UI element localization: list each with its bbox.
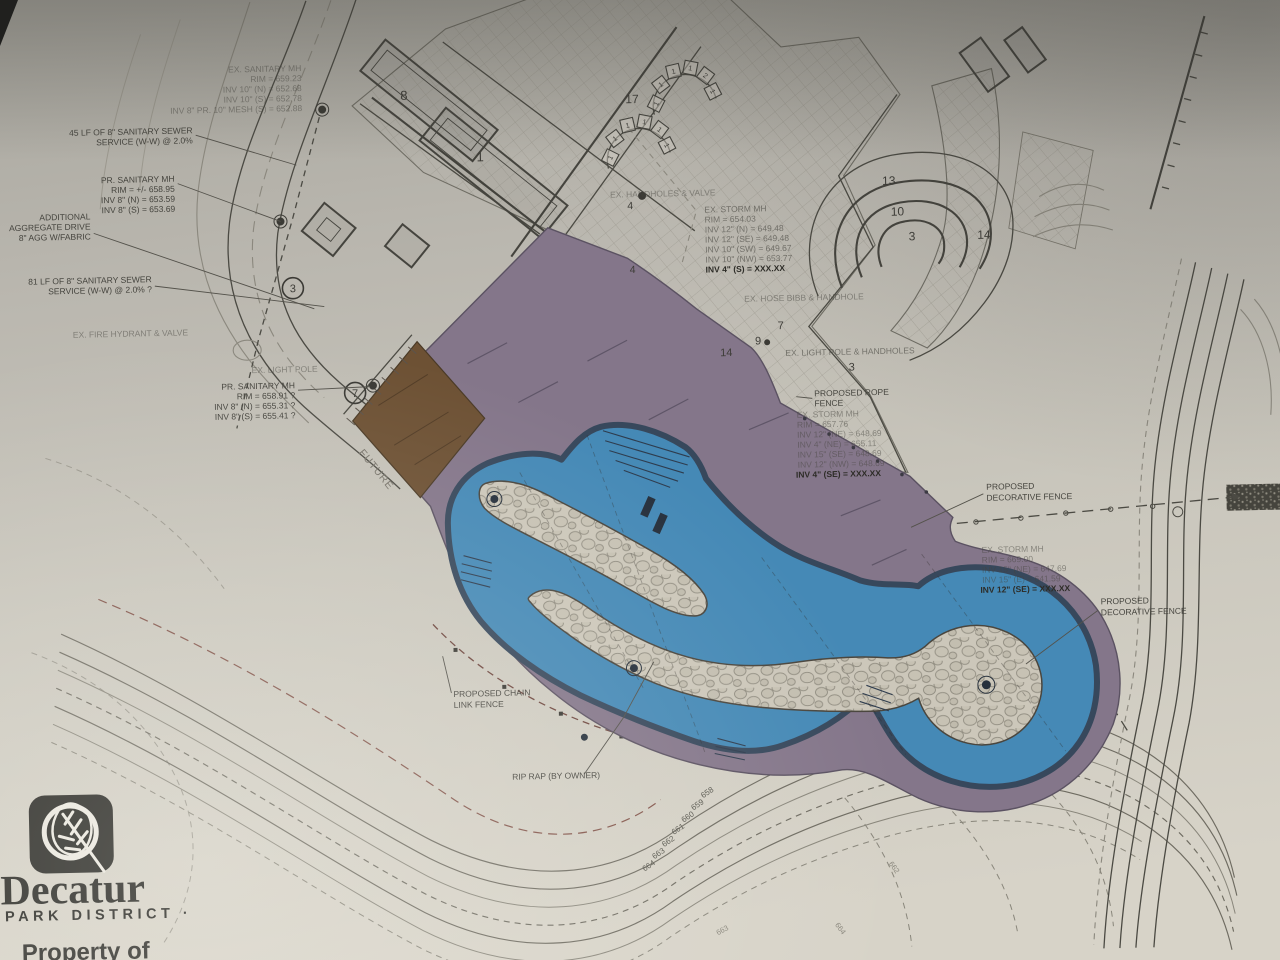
photo-corner-shade xyxy=(0,0,1280,960)
site-plan-canvas: 1 1 1 1 2 1 1 1 1 1 1 1 xyxy=(0,0,1280,960)
site-plan-photo: 1 1 1 1 2 1 1 1 1 1 1 1 xyxy=(0,0,1280,960)
